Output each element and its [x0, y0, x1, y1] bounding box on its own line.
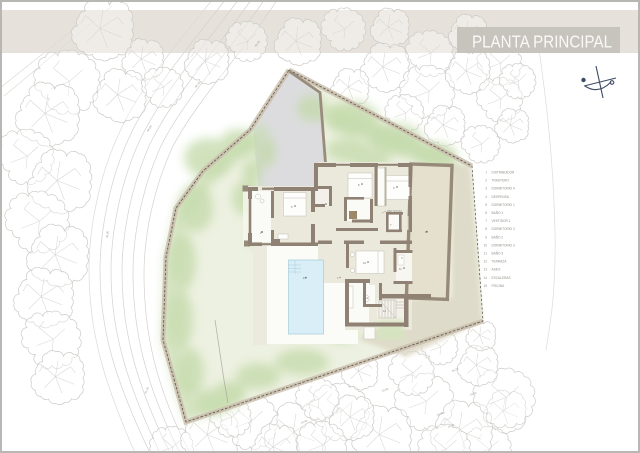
svg-text:ASEO: ASEO: [492, 268, 501, 272]
svg-text:BAÑO 2: BAÑO 2: [492, 234, 504, 239]
svg-text:5: 5: [485, 203, 487, 207]
svg-text:1: 1: [485, 171, 487, 175]
svg-text:DORMITORIO 3: DORMITORIO 3: [492, 243, 516, 247]
svg-text:TRASTERO: TRASTERO: [492, 179, 510, 183]
svg-text:2: 2: [485, 179, 487, 183]
svg-text:DORMITORIO 1: DORMITORIO 1: [492, 203, 516, 207]
svg-text:PISCINA: PISCINA: [492, 284, 506, 288]
svg-text:DORMITORIO 2: DORMITORIO 2: [492, 227, 516, 231]
svg-text:14: 14: [483, 276, 487, 280]
svg-text:8: 8: [485, 227, 487, 231]
svg-text:ESCALERAS: ESCALERAS: [492, 276, 511, 280]
svg-text:TERRAZA: TERRAZA: [492, 260, 508, 264]
svg-text:43.80: 43.80: [105, 230, 110, 238]
svg-text:3: 3: [485, 187, 487, 191]
svg-text:DESPENSA: DESPENSA: [492, 195, 510, 199]
svg-text:12: 12: [483, 260, 487, 264]
svg-text:BAÑO 3: BAÑO 3: [492, 251, 504, 256]
svg-text:PLANTA PRINCIPAL: PLANTA PRINCIPAL: [472, 32, 612, 52]
svg-text:9: 9: [485, 235, 487, 239]
svg-text:VESTIDOR 1: VESTIDOR 1: [492, 219, 511, 223]
svg-text:7: 7: [485, 219, 487, 223]
svg-text:15: 15: [483, 284, 487, 288]
svg-text:BAÑO 1: BAÑO 1: [492, 210, 504, 215]
svg-text:4: 4: [485, 195, 487, 199]
svg-text:6: 6: [485, 211, 487, 215]
svg-text:DISTRIBUIDOR: DISTRIBUIDOR: [492, 171, 516, 175]
svg-text:13: 13: [483, 268, 487, 272]
svg-text:10: 10: [483, 243, 487, 247]
svg-text:11: 11: [484, 252, 488, 256]
svg-text:DORMITORIO 4: DORMITORIO 4: [492, 187, 516, 191]
